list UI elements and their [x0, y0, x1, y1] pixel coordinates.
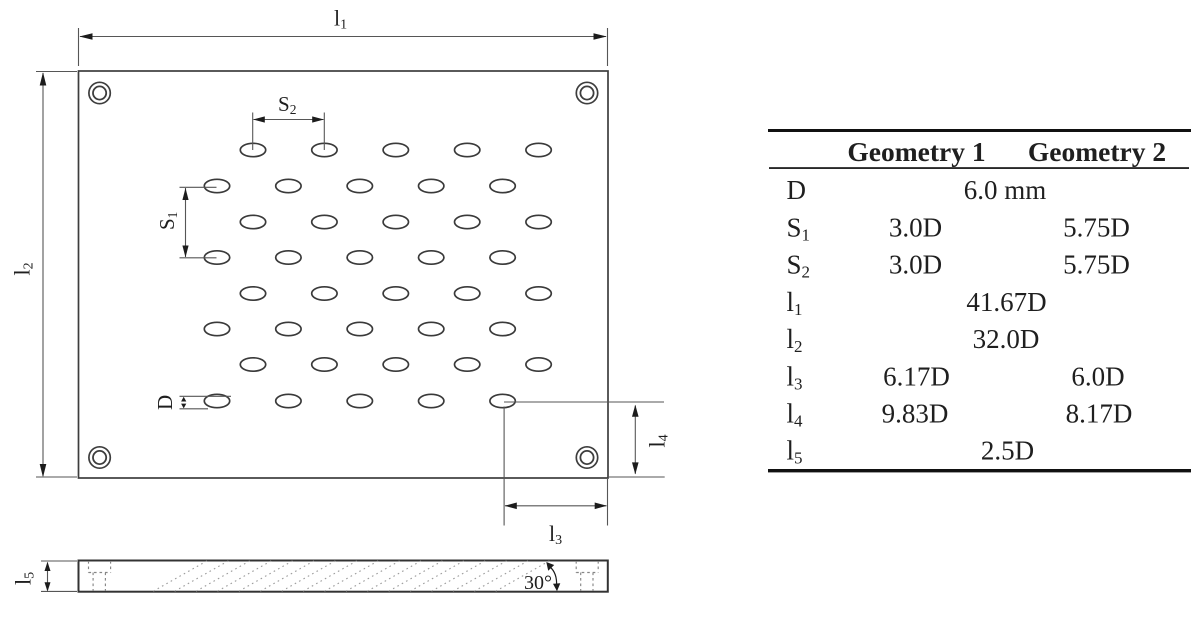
svg-text:Geometry 1: Geometry 1	[847, 136, 985, 167]
svg-text:3.0D: 3.0D	[889, 250, 942, 280]
svg-text:3.0D: 3.0D	[889, 213, 942, 243]
svg-text:6.0 mm: 6.0 mm	[964, 175, 1047, 205]
svg-text:5.75D: 5.75D	[1063, 250, 1130, 280]
svg-text:Geometry 2: Geometry 2	[1028, 136, 1166, 167]
svg-text:2.5D: 2.5D	[981, 436, 1034, 466]
svg-text:8.17D: 8.17D	[1066, 399, 1133, 429]
svg-text:D: D	[153, 395, 177, 410]
svg-text:30°: 30°	[524, 572, 552, 594]
svg-text:32.0D: 32.0D	[973, 324, 1040, 354]
svg-text:41.67D: 41.67D	[966, 287, 1046, 317]
svg-text:9.83D: 9.83D	[882, 399, 949, 429]
svg-text:6.0D: 6.0D	[1071, 362, 1124, 392]
svg-text:5.75D: 5.75D	[1063, 213, 1130, 243]
svg-text:D: D	[787, 175, 807, 205]
svg-text:6.17D: 6.17D	[883, 362, 950, 392]
